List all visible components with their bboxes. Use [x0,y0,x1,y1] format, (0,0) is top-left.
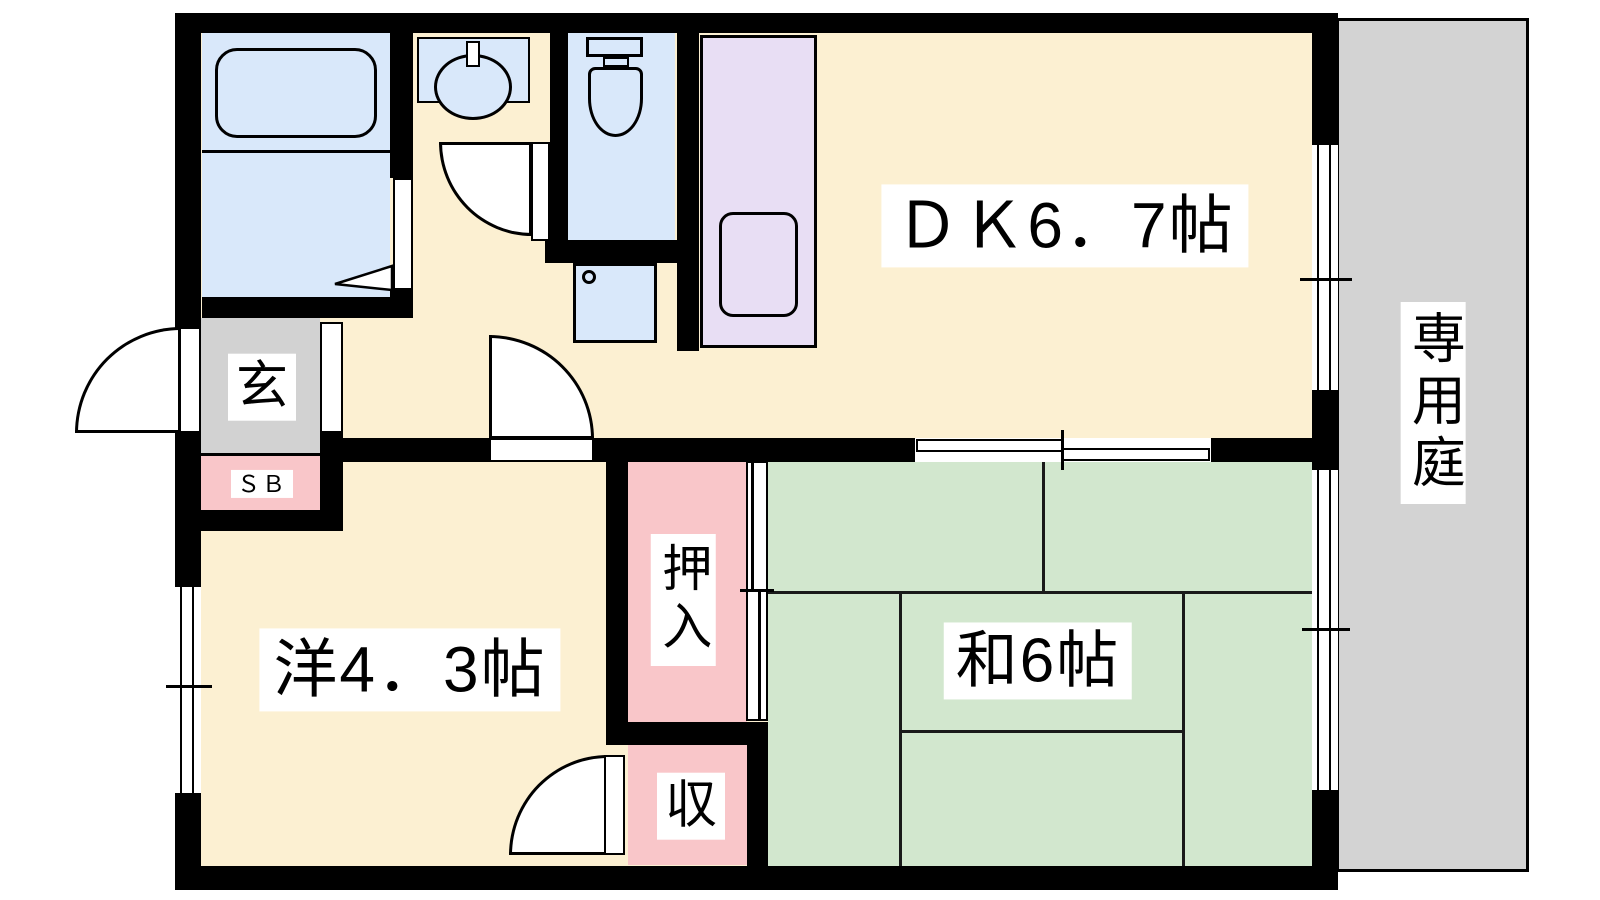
tatami-line [899,730,1185,733]
tatami-line [899,592,902,866]
wall [202,297,413,318]
wall [606,722,747,745]
wall [201,453,320,456]
bathroom-door-icon [330,260,400,296]
wall [747,722,768,866]
storage-door-leaf [604,755,625,855]
western-room-door-leaf [489,438,594,462]
window-west [175,587,201,793]
wall [606,462,628,738]
entrance-door-leaf [179,327,201,433]
window-center-tick [1300,278,1352,281]
tatami-line [768,591,1312,594]
fusuma-meeting-tick [740,589,774,592]
wall [175,510,343,531]
sliding-door-meeting-tick [1061,430,1064,470]
wall [545,240,697,263]
window-center-tick [166,685,212,688]
wall [390,33,413,178]
kitchen-sink-icon [719,212,798,317]
room-label-shoe-box: ＳＢ [231,470,293,498]
doorway-jamb [320,322,343,433]
bathtub-deck-line [202,150,390,153]
room-label-private-garden: 専用庭 [1401,302,1466,504]
washing-machine-drain-icon [582,270,596,284]
floorplan-canvas: ＤＫ6．7帖 洋4．3帖 和6帖 専用庭 押入 収 玄 ＳＢ [0,0,1600,900]
bathtub-icon [215,48,377,138]
toilet-tank-icon [586,37,643,57]
room-label-entrance: 玄 [228,354,296,421]
sliding-door-panel [1062,448,1210,461]
tatami-line [1042,462,1045,592]
room-label-japanese-room: 和6帖 [944,622,1132,699]
entrance-door-swing [75,327,181,433]
toilet-lid-icon [603,57,629,67]
window-dk-east [1312,145,1338,390]
toilet-door-leaf [531,142,550,241]
room-label-storage: 収 [657,773,725,840]
room-label-western-room: 洋4．3帖 [259,628,560,711]
window-center-tick [1302,628,1350,631]
sliding-door-panel [916,439,1064,452]
wall [677,33,699,351]
room-label-dk: ＤＫ6．7帖 [881,184,1248,267]
wall [320,433,343,531]
fusuma-panel-line [758,591,761,719]
washbasin-tap-icon [466,41,480,67]
wall [550,33,568,263]
tatami-line [1182,592,1185,866]
fusuma-panel-line [751,463,754,591]
room-label-oshiire: 押入 [651,534,716,666]
